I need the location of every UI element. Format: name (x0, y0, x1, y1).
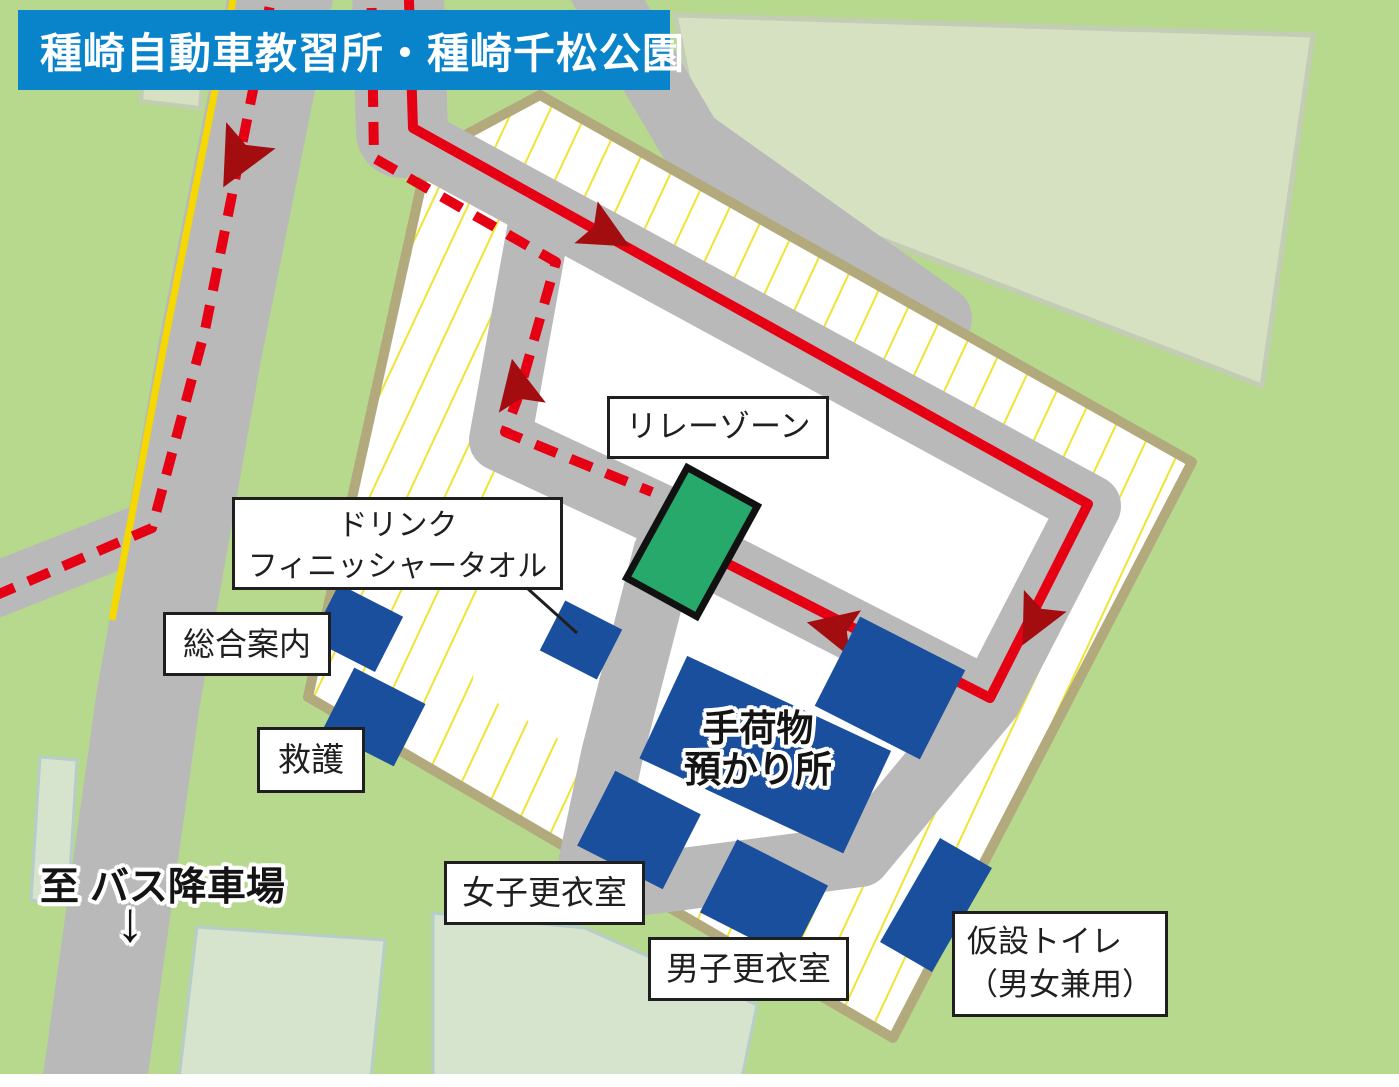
map-canvas (0, 0, 1399, 1087)
baggage-text-line1: 手荷物 (648, 708, 868, 749)
womens-changing-text: 女子更衣室 (462, 874, 627, 911)
label-temporary-toilet: 仮設トイレ （男女兼用） (952, 911, 1168, 1017)
bus-stop-text: 至 バス降車場 (40, 866, 285, 909)
baggage-text-line2: 預かり所 (648, 749, 868, 790)
toilet-text-line1: 仮設トイレ (967, 921, 1153, 964)
label-womens-changing-room: 女子更衣室 (444, 861, 645, 925)
page-title: 種崎自動車教習所・種崎千松公園 (40, 20, 685, 81)
label-information: 総合案内 (163, 612, 331, 676)
bottom-margin (0, 1074, 1399, 1087)
drink-text-line2: フィニッシャータオル (235, 547, 560, 588)
toilet-text-line2: （男女兼用） (967, 964, 1153, 1007)
information-text: 総合案内 (183, 626, 311, 662)
label-relay-zone: リレーゾーン (607, 396, 829, 459)
map-screenshot: 種崎自動車教習所・種崎千松公園 リレーゾーン ドリンク フィニッシャータオル 総… (0, 0, 1399, 1087)
label-drink-finisher-towel: ドリンク フィニッシャータオル (232, 497, 563, 590)
relay-zone-text: リレーゾーン (626, 409, 810, 444)
bus-stop-down-arrow-icon: ↓ (116, 894, 144, 950)
label-to-bus-stop: 至 バス降車場 (40, 856, 285, 912)
drink-text-line1: ドリンク (235, 506, 560, 547)
label-baggage-storage: 手荷物 預かり所 (648, 708, 868, 791)
label-mens-changing-room: 男子更衣室 (648, 937, 849, 1001)
label-first-aid: 救護 (257, 727, 365, 793)
title-banner: 種崎自動車教習所・種崎千松公園 (18, 10, 670, 90)
first-aid-text: 救護 (278, 741, 344, 778)
mens-changing-text: 男子更衣室 (666, 950, 831, 987)
